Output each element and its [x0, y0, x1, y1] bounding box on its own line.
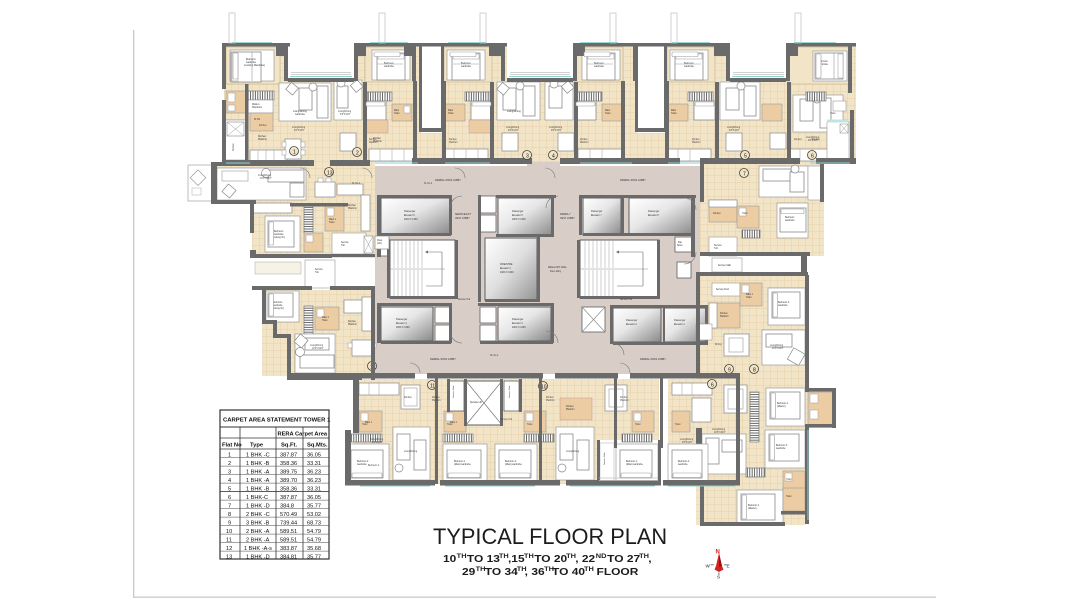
svg-text:Service: Service [714, 244, 722, 247]
svg-text:13: 13 [327, 171, 333, 177]
svg-text:Living/Dining: Living/Dining [404, 451, 418, 453]
svg-text:wardrobe: wardrobe [785, 219, 795, 222]
svg-text:Kitchen: Kitchen [449, 138, 457, 141]
svg-text:SL No.4: SL No.4 [490, 355, 499, 357]
svg-text:Bedroom 2: Bedroom 2 [678, 460, 690, 463]
svg-text:1: 1 [293, 150, 296, 156]
svg-text:,: , [648, 554, 651, 565]
svg-text:Toilet: Toilet [447, 423, 453, 426]
svg-text:Platform: Platform [546, 399, 555, 402]
svg-text:9'0"X14'0": 9'0"X14'0" [682, 442, 693, 444]
svg-text:TYPICAL FLOOR PLAN: TYPICAL FLOOR PLAN [433, 524, 667, 549]
svg-text:TO 20: TO 20 [534, 554, 567, 565]
svg-text:1 BHK -D: 1 BHK -D [246, 554, 270, 560]
svg-text:Kitchen: Kitchen [566, 405, 574, 408]
svg-text:Wardrobe: Wardrobe [252, 106, 263, 109]
svg-text:CARPET AREA STATEMENT TOWER 1: CARPET AREA STATEMENT TOWER 1 [223, 418, 331, 424]
svg-text:wardrobe: wardrobe [274, 233, 284, 236]
svg-text:wardrobe: wardrobe [776, 447, 786, 450]
svg-text:6: 6 [811, 154, 814, 160]
svg-text:Service: Service [315, 268, 323, 271]
svg-text:Living/Dining: Living/Dining [292, 127, 306, 129]
svg-text:, 36: , 36 [525, 567, 545, 578]
svg-text:Bedroom 1: Bedroom 1 [777, 402, 789, 405]
svg-text:Platform: Platform [432, 399, 441, 402]
svg-text:TH: TH [584, 566, 594, 573]
svg-text:Passenger: Passenger [648, 210, 660, 213]
svg-text:Living/Dining: Living/Dining [549, 127, 563, 129]
svg-text:Bedroom 3: Bedroom 3 [776, 444, 788, 447]
svg-text:E: E [727, 564, 730, 569]
svg-text:Bedroom: Bedroom [274, 230, 283, 233]
svg-text:Service Slab: Service Slab [603, 452, 606, 465]
svg-text:Mast: Mast [394, 109, 399, 112]
svg-text:S: S [717, 575, 720, 580]
svg-text:Mast 1: Mast 1 [746, 293, 754, 296]
svg-text:Toilet: Toilet [527, 423, 533, 426]
svg-text:9'0"X12'6": 9'0"X12'6" [551, 130, 562, 132]
svg-text:9: 9 [728, 368, 731, 374]
svg-text:KEMBALI PASS LOBBY: KEMBALI PASS LOBBY [640, 358, 666, 361]
svg-text:KEMBA-Y: KEMBA-Y [560, 213, 571, 216]
svg-text:,15: ,15 [508, 554, 525, 565]
svg-text:Elevator 6: Elevator 6 [512, 214, 523, 217]
svg-text:8'6"X12'0": 8'6"X12'0" [729, 130, 740, 132]
svg-text:Flat No: Flat No [222, 443, 242, 449]
svg-text:VEST LOBBY: VEST LOBBY [455, 217, 470, 220]
svg-text:8: 8 [753, 368, 756, 374]
svg-text:2000 X 1300: 2000 X 1300 [512, 218, 526, 221]
svg-text:Kitchen: Kitchen [692, 138, 700, 141]
svg-text:wardrobe: wardrobe [295, 113, 306, 116]
svg-text:(Looking Wardrobe): (Looking Wardrobe) [244, 64, 265, 67]
svg-text:Mast 1: Mast 1 [329, 218, 337, 221]
svg-text:10'0"X13'0": 10'0"X13'0" [772, 348, 784, 350]
svg-text:Kitchen: Kitchen [580, 138, 588, 141]
svg-text:8'6"X12'0": 8'6"X12'0" [340, 114, 351, 116]
svg-text:Mildest 6FT Wide: Mildest 6FT Wide [548, 266, 567, 269]
svg-text:Mast 1: Mast 1 [322, 316, 330, 319]
svg-text:Kitchen: Kitchen [404, 396, 412, 399]
svg-text:Mast: Mast [671, 109, 676, 112]
svg-text:W: W [706, 564, 711, 569]
svg-text:Elevator 8: Elevator 8 [648, 214, 659, 217]
svg-text:Kitchen: Kitchen [812, 138, 820, 141]
svg-text:Passenger: Passenger [512, 210, 524, 213]
svg-text:SL No.1: SL No.1 [352, 183, 361, 185]
svg-text:wardrobe: wardrobe [357, 463, 367, 466]
svg-text:Service: Service [232, 143, 235, 151]
svg-text:(Master): (Master) [748, 507, 757, 510]
svg-text:2: 2 [356, 151, 359, 157]
svg-text:ND: ND [596, 553, 607, 560]
svg-text:Toilet: Toilet [746, 296, 752, 299]
svg-text:Mast: Mast [605, 109, 610, 112]
svg-text:5: 5 [744, 154, 747, 160]
svg-text:(Mast) wardrobe: (Mast) wardrobe [505, 463, 522, 466]
svg-text:Toilet: Toilet [635, 423, 641, 426]
svg-text:4: 4 [552, 154, 555, 160]
svg-text:Bedroom 1: Bedroom 1 [454, 460, 466, 463]
svg-text:Living/Dining: Living/Dining [727, 127, 741, 129]
svg-text:Living/Dining: Living/Dining [370, 439, 384, 441]
svg-text:29: 29 [462, 567, 475, 578]
svg-text:Service Tub: Service Tub [620, 298, 633, 301]
svg-text:Toilet: Toilet [605, 112, 611, 115]
svg-text:Passenger: Passenger [674, 319, 686, 322]
svg-text:Passenger: Passenger [591, 210, 603, 213]
svg-text:(Mast) wardrobe: (Mast) wardrobe [454, 463, 471, 466]
svg-text:10'0"X13'0": 10'0"X13'0" [714, 432, 726, 434]
svg-text:2000 X 1300: 2000 X 1300 [396, 326, 410, 329]
svg-text:TH: TH [457, 553, 467, 560]
svg-text:Toilet: Toilet [786, 478, 792, 481]
svg-text:Service: Service [341, 241, 349, 244]
svg-text:7: 7 [743, 172, 746, 178]
svg-text:Platform: Platform [449, 141, 458, 144]
svg-text:TO 34: TO 34 [485, 567, 519, 578]
svg-text:Kitchen: Kitchen [369, 138, 377, 141]
svg-text:Elevator 3: Elevator 3 [512, 322, 523, 325]
svg-text:Bedroom 2: Bedroom 2 [505, 460, 517, 463]
svg-text:KEMBALI PASS LOBBY: KEMBALI PASS LOBBY [620, 179, 646, 182]
svg-text:Toilet: Toilet [742, 212, 748, 215]
svg-text:Passenger: Passenger [396, 318, 408, 321]
svg-text:SERVICE/LIFT: SERVICE/LIFT [455, 213, 472, 216]
svg-text:Kitchen: Kitchen [720, 312, 728, 315]
svg-text:(Looking W.): (Looking W.) [272, 237, 285, 239]
svg-text:wardrobe: wardrobe [778, 304, 788, 307]
svg-text:9'0"X14'0": 9'0"X14'0" [372, 442, 383, 444]
svg-text:Toilet: Toilet [394, 112, 400, 115]
svg-text:Living/Dining: Living/Dining [506, 127, 520, 129]
svg-text:Platform: Platform [580, 141, 589, 144]
svg-text:Type: Type [250, 443, 264, 449]
svg-text:TO 40: TO 40 [552, 567, 585, 578]
svg-text:Service Tub: Service Tub [500, 418, 513, 421]
svg-text:Bedroom 1: Bedroom 1 [748, 504, 760, 507]
svg-text:(Master): (Master) [777, 405, 786, 408]
svg-text:Strcs: Strcs [677, 244, 683, 247]
svg-text:wardrobe: wardrobe [461, 65, 472, 68]
svg-text:TO 27: TO 27 [607, 554, 640, 565]
svg-text:Toilet: Toilet [448, 112, 454, 115]
svg-text:Service Tub: Service Tub [458, 298, 471, 301]
svg-text:2000 X 1300: 2000 X 1300 [512, 326, 526, 329]
svg-text:Platform: Platform [348, 207, 357, 210]
svg-text:11: 11 [430, 384, 435, 390]
svg-text:3: 3 [526, 154, 529, 160]
svg-text:Living/Dining: Living/Dining [770, 345, 784, 347]
svg-text:Pass: Pass [377, 240, 383, 242]
svg-text:Platform: Platform [348, 323, 357, 326]
svg-text:Living/Dining: Living/Dining [680, 439, 694, 441]
svg-text:9'0"X12'6": 9'0"X12'6" [294, 130, 305, 132]
svg-text:9'0"X12'6": 9'0"X12'6" [508, 130, 519, 132]
svg-text:Service Duct: Service Duct [716, 288, 729, 291]
svg-text:Passenger: Passenger [404, 210, 416, 213]
svg-text:Sq.Ft.: Sq.Ft. [281, 443, 297, 449]
svg-text:Passenger: Passenger [626, 319, 638, 322]
svg-text:2400 X 1600: 2400 X 1600 [500, 271, 514, 274]
svg-text:Kitchen: Kitchen [713, 212, 721, 215]
svg-text:Bedroom 1: Bedroom 1 [626, 460, 638, 463]
svg-text:Living/Dining: Living/Dining [507, 110, 521, 113]
svg-text:35.77: 35.77 [307, 554, 321, 560]
svg-text:, 22: , 22 [575, 554, 595, 565]
svg-text:Toilet: Toilet [786, 495, 792, 498]
svg-text:Kitchen: Kitchen [620, 396, 628, 399]
svg-text:wardrobe: wardrobe [594, 65, 605, 68]
svg-text:Kitchen: Kitchen [432, 396, 440, 399]
svg-text:TH: TH [524, 553, 534, 560]
svg-text:Dining: Dining [715, 344, 722, 346]
svg-text:6: 6 [711, 383, 714, 389]
svg-text:Service Lift: Service Lift [470, 401, 482, 404]
svg-text:Living/Dining: Living/Dining [258, 175, 272, 177]
svg-text:10: 10 [443, 554, 456, 565]
svg-text:KEMBALI PASS LOBBY: KEMBALI PASS LOBBY [435, 179, 461, 182]
svg-text:wardrobe: wardrobe [684, 65, 695, 68]
svg-text:M.Toil: M.Toil [254, 119, 260, 121]
svg-text:Service Slab: Service Slab [452, 385, 455, 398]
svg-text:10'0"X12'6": 10'0"X12'6" [260, 178, 272, 180]
svg-text:10'0"X12'6": 10'0"X12'6" [312, 348, 324, 350]
svg-text:File Lobby: File Lobby [550, 270, 562, 273]
svg-text:Kitchen: Kitchen [259, 124, 267, 127]
svg-text:(Mast) wardrobe: (Mast) wardrobe [626, 463, 643, 466]
svg-text:Toilet: Toilet [362, 423, 368, 426]
svg-text:Platform: Platform [566, 408, 575, 411]
svg-text:Service Slab: Service Slab [508, 385, 511, 398]
svg-text:384.81: 384.81 [280, 554, 297, 560]
svg-text:Bedroom 2: Bedroom 2 [778, 301, 790, 304]
svg-text:wardrobe: wardrobe [384, 65, 395, 68]
svg-text:Service Slab: Service Slab [718, 264, 732, 267]
svg-text:Bedroom: Bedroom [273, 301, 282, 304]
svg-text:wardrobe: wardrobe [273, 304, 283, 307]
svg-text:FLOOR: FLOOR [597, 567, 639, 578]
svg-text:Elevator 5: Elevator 5 [404, 214, 415, 217]
svg-text:FIRE/STRE: FIRE/STRE [500, 263, 513, 266]
svg-text:VEST LOBBY: VEST LOBBY [560, 217, 575, 220]
svg-text:Platform: Platform [620, 399, 629, 402]
svg-text:Toilet: Toilet [671, 112, 677, 115]
svg-text:Toilet: Toilet [830, 112, 836, 115]
svg-text:Kitchen: Kitchen [546, 396, 554, 399]
svg-text:Mast: Mast [448, 109, 453, 112]
svg-text:Platform: Platform [369, 141, 378, 144]
svg-text:Platform: Platform [258, 138, 267, 141]
svg-text:Sq.Mts.: Sq.Mts. [307, 443, 328, 449]
svg-text:Living/Dining: Living/Dining [712, 429, 726, 431]
svg-text:Elevator 7: Elevator 7 [591, 214, 602, 217]
svg-text:Toilet: Toilet [329, 221, 335, 224]
svg-text:Platform: Platform [692, 141, 701, 144]
svg-text:2000 X 1300: 2000 X 1300 [404, 218, 418, 221]
svg-text:wardrobe: wardrobe [678, 463, 688, 466]
svg-text:Platform: Platform [720, 315, 729, 318]
svg-text:Living/Dining: Living/Dining [338, 111, 352, 113]
svg-text:Kitchen: Kitchen [794, 138, 802, 141]
svg-text:Elevator 1: Elevator 1 [674, 323, 685, 326]
svg-text:Elevator 1: Elevator 1 [500, 267, 511, 270]
svg-text:Bedroom: Bedroom [785, 216, 794, 219]
svg-text:TO 13: TO 13 [467, 554, 500, 565]
svg-text:KEMBALI PASS LOBBY: KEMBALI PASS LOBBY [430, 358, 456, 361]
svg-text:Bedroom 2: Bedroom 2 [357, 460, 369, 463]
svg-text:Elevator 4: Elevator 4 [396, 322, 407, 325]
svg-text:Toilet: Toilet [675, 423, 681, 426]
svg-text:Elevator 2: Elevator 2 [626, 323, 637, 326]
svg-text:(Lift): (Lift) [377, 242, 382, 245]
svg-text:Passenger: Passenger [512, 318, 524, 321]
svg-text:Toilet: Toilet [322, 319, 328, 322]
svg-text:Living/Dining: Living/Dining [310, 345, 324, 347]
svg-text:Walk-in: Walk-in [252, 104, 260, 106]
svg-text:Bedroom 2: Bedroom 2 [368, 464, 380, 467]
svg-text:Living/Dining: Living/Dining [566, 451, 580, 453]
svg-text:13: 13 [226, 554, 232, 560]
svg-text:SL No.2: SL No.2 [424, 183, 433, 185]
